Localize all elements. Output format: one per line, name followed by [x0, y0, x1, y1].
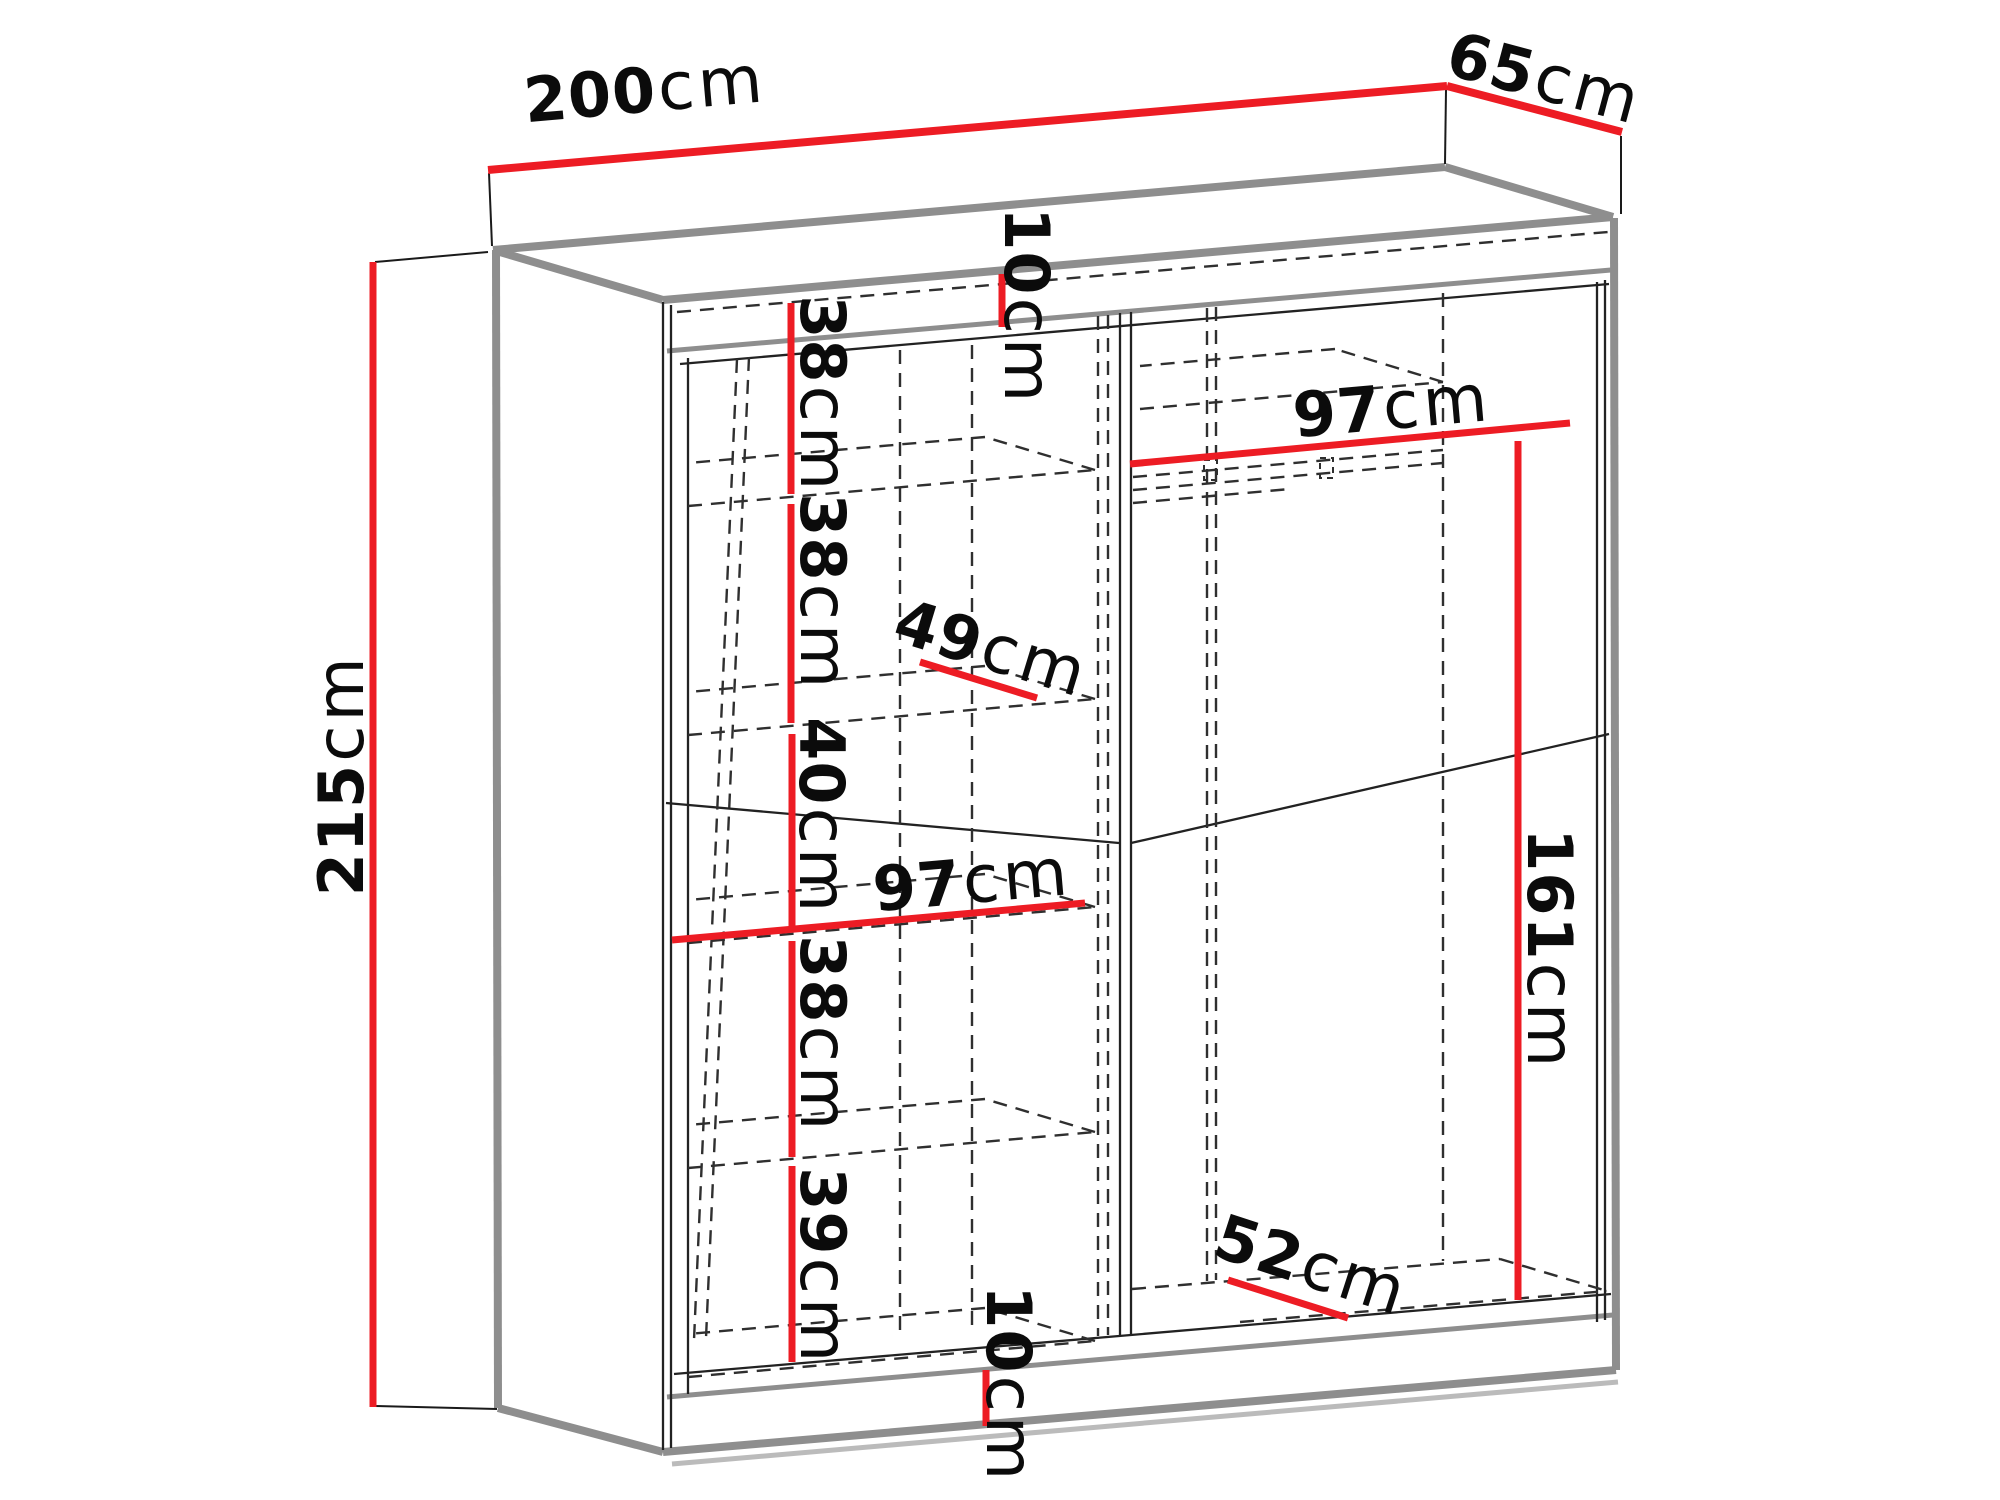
dim-unit: cm — [790, 584, 856, 693]
dim-label-right-width: 97 cm — [1290, 365, 1494, 448]
hidden-shelf-line — [985, 1099, 1095, 1132]
dim-unit: cm — [994, 298, 1060, 407]
edge-left-bottom-depth — [498, 1408, 663, 1452]
dim-unit: cm — [1380, 365, 1494, 440]
hidden-shelf-line — [688, 470, 1095, 506]
extension-line — [1445, 90, 1446, 164]
dim-label-height: 215 cm — [308, 653, 374, 896]
dim-value: 97 — [1290, 378, 1383, 447]
dim-unit: cm — [1517, 963, 1583, 1072]
dim-unit: cm — [790, 1258, 856, 1367]
dim-value: 215 — [311, 764, 373, 896]
dim-value: 10 — [995, 207, 1057, 295]
dim-label-top-gap: 10 cm — [994, 207, 1060, 406]
dim-value: 40 — [790, 717, 852, 805]
hidden-hanging-rod-line — [1133, 489, 1290, 503]
dim-unit: cm — [789, 808, 855, 917]
dim-unit: cm — [960, 839, 1074, 914]
dim-value: 38 — [791, 935, 853, 1023]
rod-brackets — [1204, 458, 1333, 480]
dim-label-bottom-gap: 10 cm — [976, 1285, 1042, 1484]
dim-label-left-shelf-4: 38 cm — [790, 935, 856, 1134]
dim-value: 10 — [977, 1285, 1039, 1373]
dim-value: 38 — [791, 493, 853, 581]
dim-value: 97 — [870, 852, 963, 921]
dim-label-left-shelf-1: 38 cm — [790, 295, 856, 494]
edge-bottom-front — [663, 1370, 1616, 1452]
edge-top-back — [493, 167, 1445, 250]
hidden-hanging-rod-line — [1133, 450, 1443, 477]
extension-line — [375, 252, 488, 262]
right-door-handle-line — [1131, 734, 1609, 843]
dim-unit: cm — [790, 1026, 856, 1135]
hidden-shelf-line — [1140, 349, 1335, 366]
dim-label-left-shelf-2: 38 cm — [790, 493, 856, 692]
hidden-shelf-line — [985, 437, 1095, 470]
dim-value: 200 — [521, 59, 658, 132]
dim-label-left-shelf-5: 39 cm — [790, 1167, 856, 1366]
dim-unit: cm — [976, 1376, 1042, 1485]
bottom-shadow-line — [672, 1382, 1618, 1464]
edge-top-left-depth — [493, 250, 663, 300]
dim-value: 38 — [791, 295, 853, 383]
dim-value: 39 — [791, 1167, 853, 1255]
edge-left-back-vertical — [496, 250, 498, 1408]
dim-label-left-width: 97 cm — [870, 839, 1074, 922]
edge-right-front-vertical — [1614, 218, 1616, 1370]
dim-label-hanging-height: 161 cm — [1517, 828, 1583, 1071]
extension-line — [489, 173, 492, 246]
hidden-left-wall-line — [694, 359, 737, 1340]
edge-top-front — [663, 217, 1613, 300]
hidden-shelf-line — [688, 1132, 1095, 1168]
extension-line — [375, 1406, 497, 1409]
dim-unit: cm — [790, 386, 856, 495]
edge-top-right-depth — [1445, 167, 1613, 217]
hidden-hanging-rod-line — [1133, 463, 1443, 490]
dim-unit: cm — [308, 653, 374, 762]
dim-value: 161 — [1518, 828, 1580, 960]
wardrobe-dimension-diagram: 200 cm 65 cm 215 cm 10 cm 38 cm 38 cm 40… — [0, 0, 2000, 1500]
dim-label-left-shelf-3: 40 cm — [789, 717, 855, 916]
hidden-shelf-line — [688, 699, 1095, 735]
dim-unit: cm — [655, 46, 769, 121]
